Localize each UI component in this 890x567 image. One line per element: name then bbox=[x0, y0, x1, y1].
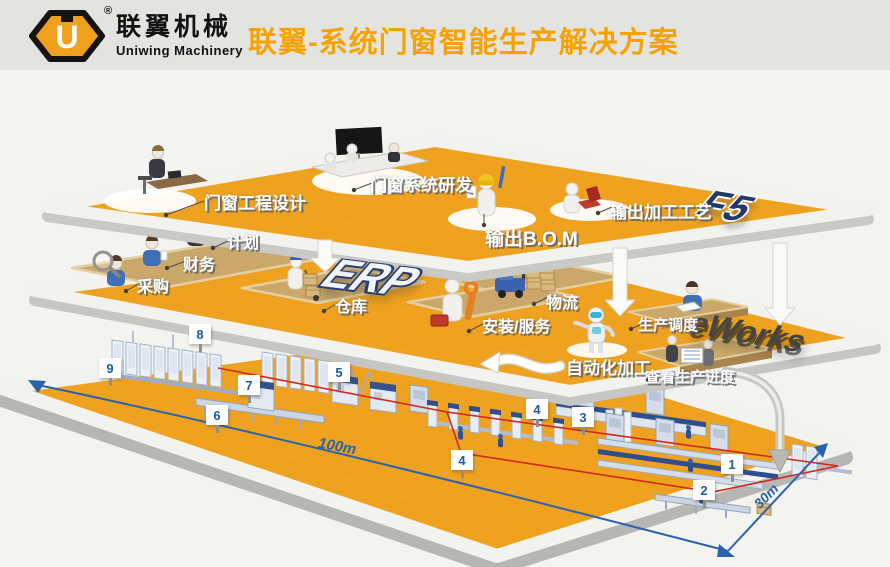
brand-name-en: Uniwing Machinery bbox=[116, 44, 243, 57]
station-label-finance: 财务 bbox=[183, 251, 215, 275]
station-label-window-system-rnd: 门窗系统研发 bbox=[370, 171, 472, 196]
station-label-window-engineering-design: 门窗工程设计 bbox=[204, 189, 306, 214]
brand-name-cn: 联翼机械 bbox=[116, 15, 243, 40]
poster-title: 联翼-系统门窗智能生产解决方案 bbox=[248, 19, 679, 61]
marker-7: 7 bbox=[238, 375, 260, 395]
uniwing-logo-icon: U bbox=[28, 7, 106, 65]
laptop-icon bbox=[168, 170, 182, 178]
station-label-install-service: 安装/服务 bbox=[482, 313, 550, 337]
marker-8: 8 bbox=[189, 324, 211, 344]
station-label-view-production-progress: 查看生产进度 bbox=[645, 366, 735, 387]
brand-logo: U ® 联翼机械 Uniwing Machinery bbox=[28, 7, 243, 65]
marker-4a: 4 bbox=[526, 399, 548, 419]
down-arrow-icon bbox=[765, 243, 795, 325]
station-label-output-bom: 输出B.O.M bbox=[485, 224, 578, 251]
solution-poster: U ® 联翼机械 Uniwing Machinery 联翼-系统门窗智能生产解决… bbox=[0, 0, 890, 567]
marker-6: 6 bbox=[206, 405, 228, 425]
marker-4b: 4 bbox=[451, 450, 473, 470]
marker-3: 3 bbox=[572, 407, 594, 427]
station-label-output-process: 输出加工工艺 bbox=[610, 198, 712, 223]
station-label-warehouse: 仓库 bbox=[335, 293, 367, 317]
station-label-production-scheduling: 生产调度 bbox=[638, 314, 698, 335]
svg-text:U: U bbox=[55, 19, 78, 55]
marker-9: 9 bbox=[99, 358, 121, 378]
station-label-procurement: 采购 bbox=[137, 273, 169, 297]
station-label-automated-machining: 自动化加工 bbox=[566, 354, 651, 379]
toolbox-icon bbox=[431, 315, 448, 326]
isometric-diagram bbox=[0, 0, 890, 567]
station-label-planning: 计划 bbox=[227, 229, 259, 253]
presentation-screen-icon bbox=[335, 127, 382, 155]
registered-mark: ® bbox=[104, 5, 112, 17]
station-label-logistics: 物流 bbox=[546, 289, 578, 313]
marker-2: 2 bbox=[693, 480, 715, 500]
marker-5: 5 bbox=[328, 362, 350, 382]
header: U ® 联翼机械 Uniwing Machinery 联翼-系统门窗智能生产解决… bbox=[0, 0, 890, 70]
marker-1: 1 bbox=[721, 454, 743, 474]
